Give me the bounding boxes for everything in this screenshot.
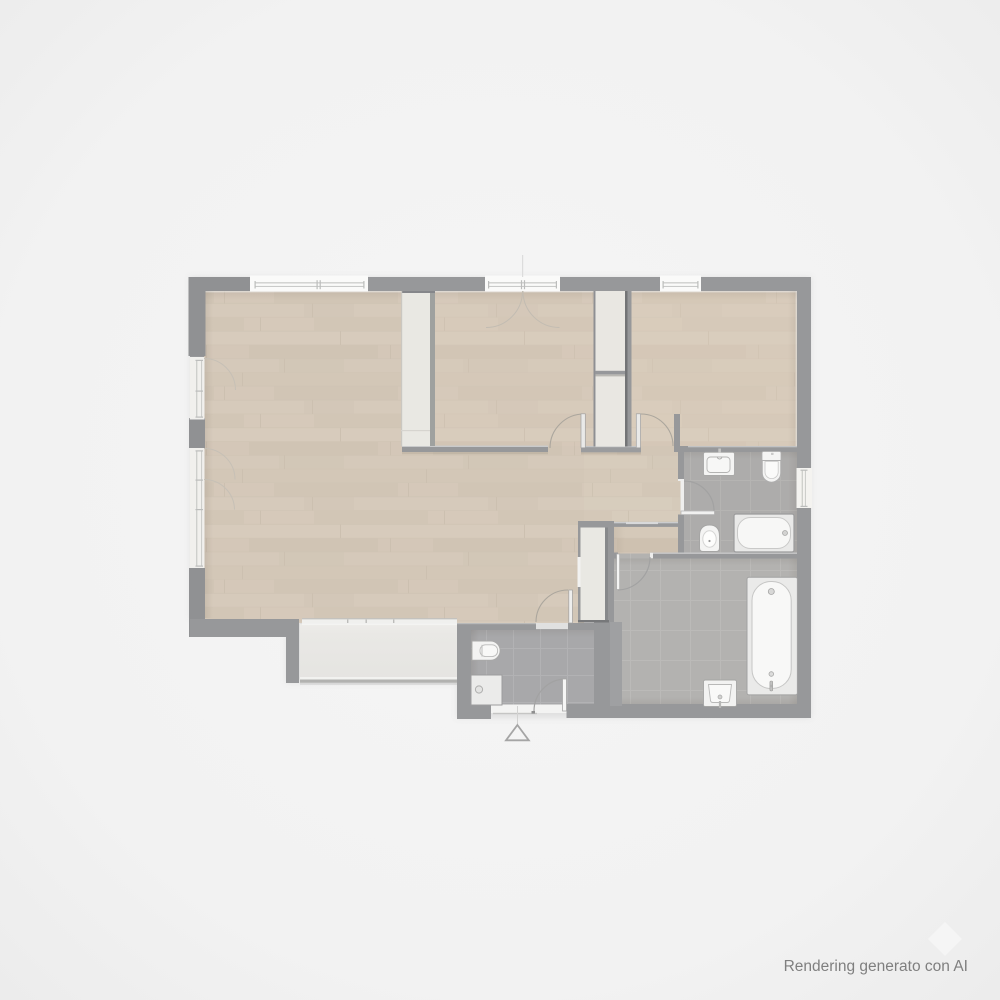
svg-text:Rendering generato con AI: Rendering generato con AI — [784, 958, 968, 975]
